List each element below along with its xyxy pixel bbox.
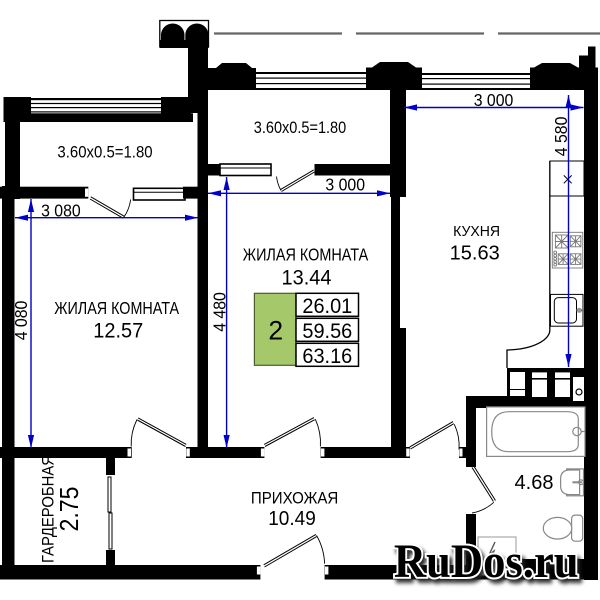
svg-text:КУХНЯ: КУХНЯ — [453, 224, 500, 240]
svg-text:2: 2 — [268, 315, 283, 345]
svg-text:3 080: 3 080 — [41, 201, 81, 221]
svg-text:ЖИЛАЯ КОМНАТА: ЖИЛАЯ КОМНАТА — [54, 300, 179, 319]
svg-text:13.44: 13.44 — [282, 266, 332, 290]
svg-text:4 580: 4 580 — [551, 117, 571, 157]
svg-text:12.57: 12.57 — [93, 319, 143, 343]
svg-text:2.75: 2.75 — [56, 486, 85, 531]
svg-text:ПРИХОЖАЯ: ПРИХОЖАЯ — [251, 490, 338, 508]
svg-text:3 000: 3 000 — [325, 175, 365, 195]
svg-text:15.63: 15.63 — [450, 242, 500, 264]
svg-text:4.68: 4.68 — [515, 472, 554, 494]
svg-text:3.60x0.5=1.80: 3.60x0.5=1.80 — [57, 143, 152, 161]
svg-text:ЖИЛАЯ КОМНАТА: ЖИЛАЯ КОМНАТА — [243, 245, 369, 265]
svg-text:4 080: 4 080 — [11, 301, 31, 341]
svg-text:10.49: 10.49 — [268, 508, 316, 531]
svg-text:4 480: 4 480 — [209, 292, 229, 332]
svg-text:63.16: 63.16 — [302, 345, 352, 369]
svg-text:26.01: 26.01 — [302, 295, 352, 319]
svg-text:RuDos.ru: RuDos.ru — [394, 535, 579, 588]
svg-text:59.56: 59.56 — [302, 320, 352, 344]
svg-text:3 000: 3 000 — [474, 90, 514, 110]
svg-text:3.60x0.5=1.80: 3.60x0.5=1.80 — [254, 119, 347, 137]
